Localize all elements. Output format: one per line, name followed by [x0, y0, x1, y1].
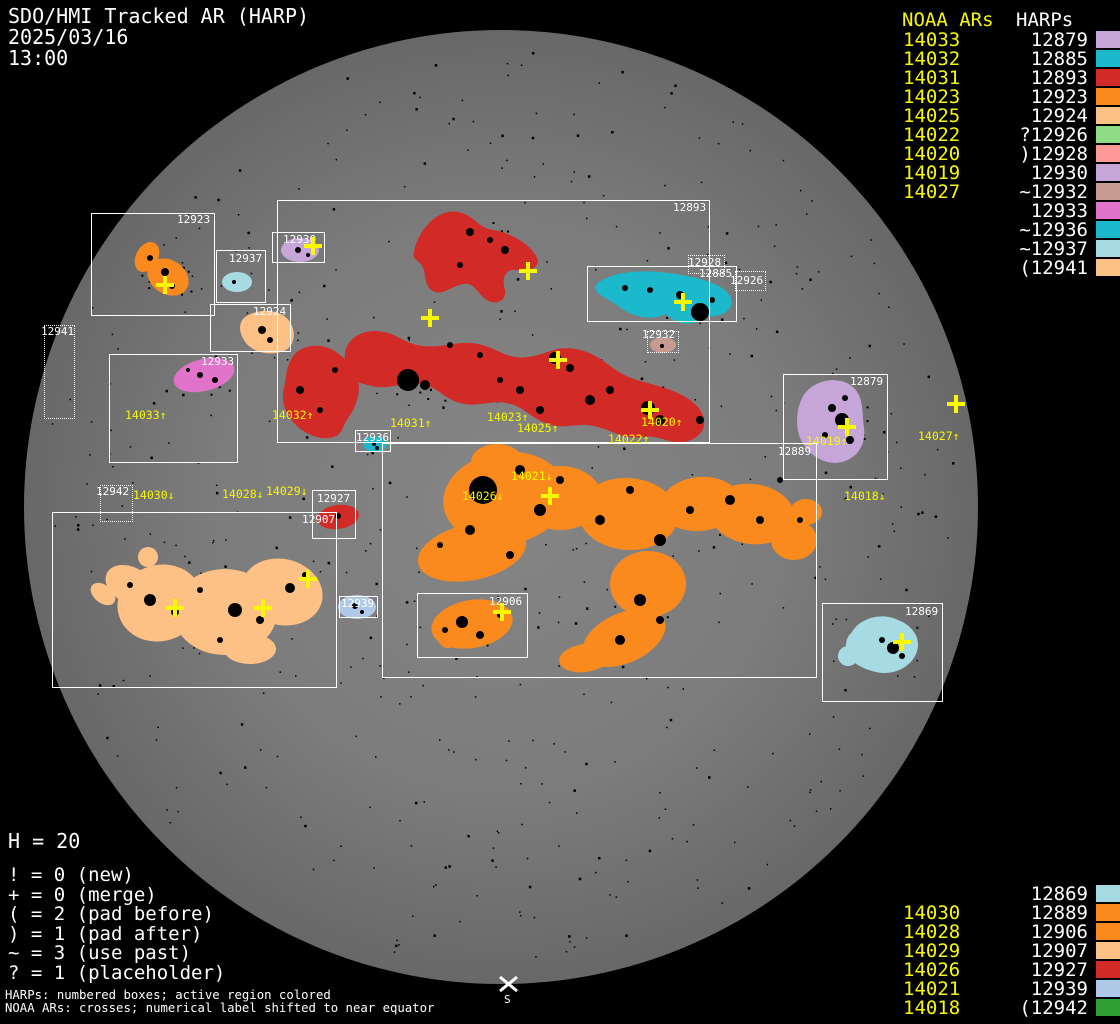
top-legend-swatch-~12936 [1096, 221, 1120, 238]
noaa-ar-label-14021: 14021↓ [511, 471, 553, 482]
noaa-ar-label-14027: 14027↑ [918, 431, 960, 442]
harp-box-label-12942: 12942 [96, 486, 129, 497]
harp-box-label-12869: 12869 [905, 606, 938, 617]
footer-notes: HARPs: numbered boxes; active region col… [5, 989, 434, 1015]
top-legend-swatch-(12941 [1096, 259, 1120, 276]
bottom-legend-swatch-12939 [1096, 980, 1120, 997]
header-block: SDO/HMI Tracked AR (HARP)2025/03/1613:00 [8, 6, 309, 69]
noaa-ar-label-14019: 14019↑ [806, 436, 848, 447]
noaa-ar-cross-icon [156, 276, 174, 294]
harp-tracker-screen: 1292312937129301292412933129411289312885… [0, 0, 1120, 1024]
noaa-ar-cross-icon [541, 487, 559, 505]
noaa-ar-cross-icon [549, 351, 567, 369]
harp-box-label-12893: 12893 [673, 202, 706, 213]
noaa-ar-cross-icon [299, 570, 317, 588]
noaa-ar-cross-icon [493, 603, 511, 621]
noaa-ar-label-14031: 14031↑ [390, 418, 432, 429]
noaa-ar-label-14030: 14030↓ [133, 490, 175, 501]
noaa-ar-cross-icon [893, 633, 911, 651]
noaa-ar-label-14022: 14022↑ [608, 434, 650, 445]
noaa-ar-cross-icon [421, 309, 439, 327]
top-legend-swatch-)12928 [1096, 145, 1120, 162]
harp-box-label-12923: 12923 [177, 214, 210, 225]
top-legend-harp-(12941: (12941 [995, 257, 1088, 279]
top-legend-swatch-12933 [1096, 202, 1120, 219]
noaa-ars-header: NOAA ARs [902, 9, 994, 31]
harp-box-12879 [783, 374, 888, 480]
harp-box-label-12907: 12907 [302, 514, 335, 525]
bottom-legend-harp-(12942: (12942 [995, 997, 1088, 1019]
noaa-ar-cross-icon [519, 262, 537, 280]
harp-box-label-12932: 12932 [642, 329, 675, 340]
harp-box-label-12936: 12936 [356, 432, 389, 443]
south-pole-label: S [504, 994, 511, 1005]
harp-box-label-12933: 12933 [201, 356, 234, 367]
flag-line: ! = 0 (new) [8, 866, 225, 886]
noaa-ar-cross-icon [674, 293, 692, 311]
top-legend-swatch-12923 [1096, 88, 1120, 105]
top-legend-swatch-12930 [1096, 164, 1120, 181]
noaa-ar-label-14032: 14032↑ [272, 410, 314, 421]
flag-legend: ! = 0 (new)+ = 0 (merge)( = 2 (pad befor… [8, 866, 225, 983]
top-legend-swatch-~12932 [1096, 183, 1120, 200]
harp-box-12923 [91, 213, 215, 316]
harp-box-12941 [44, 325, 75, 419]
noaa-ar-label-14028: 14028↓ [222, 489, 264, 500]
noaa-ar-label-14020: 14020↑ [641, 417, 683, 428]
bottom-legend-swatch-(12942 [1096, 999, 1120, 1016]
top-legend-swatch-12879 [1096, 31, 1120, 48]
top-legend-noaa-14027: 14027 [903, 181, 993, 203]
top-legend-swatch-12885 [1096, 50, 1120, 67]
flag-line: ? = 1 (placeholder) [8, 964, 225, 984]
noaa-ar-label-14025: 14025↑ [517, 423, 559, 434]
harp-box-label-12939: 12939 [341, 598, 374, 609]
noaa-ar-cross-icon [166, 599, 184, 617]
top-legend-swatch-~12937 [1096, 240, 1120, 257]
harp-box-label-12937: 12937 [229, 253, 262, 264]
harp-box-12907 [52, 512, 337, 688]
top-legend-swatch-12893 [1096, 69, 1120, 86]
time-label: 13:00 [8, 46, 68, 70]
top-legend-swatch-12924 [1096, 107, 1120, 124]
harp-box-label-12926: 12926 [730, 275, 763, 286]
flag-line: ~ = 3 (use past) [8, 944, 225, 964]
noaa-ar-label-14018: 14018↓ [844, 491, 886, 502]
harp-box-label-12941: 12941 [41, 326, 74, 337]
harp-box-label-12879: 12879 [850, 376, 883, 387]
bottom-legend-swatch-12869 [1096, 885, 1120, 902]
harp-box-label-12927: 12927 [317, 493, 350, 504]
flag-line: ( = 2 (pad before) [8, 905, 225, 925]
bottom-legend-swatch-12927 [1096, 961, 1120, 978]
harp-box-label-12928: 12928 [688, 257, 721, 268]
noaa-ar-cross-icon [947, 395, 965, 413]
noaa-ar-cross-icon [254, 599, 272, 617]
footer-line: NOAA ARs: crosses; numerical label shift… [5, 1002, 434, 1015]
top-legend-swatch-?12926 [1096, 126, 1120, 143]
footer-line: HARPs: numbered boxes; active region col… [5, 989, 434, 1002]
bottom-legend-swatch-12906 [1096, 923, 1120, 940]
noaa-ar-label-14026: 14026↓ [462, 491, 504, 502]
harp-count: H = 20 [8, 829, 80, 853]
noaa-ar-cross-icon [304, 237, 322, 255]
bottom-legend-swatch-12889 [1096, 904, 1120, 921]
noaa-ar-label-14029: 14029↓ [266, 486, 308, 497]
harps-header: HARPs [1016, 9, 1073, 31]
bottom-legend-noaa-14018: 14018 [903, 997, 993, 1019]
bottom-legend-swatch-12907 [1096, 942, 1120, 959]
noaa-ar-label-14033: 14033↑ [125, 410, 167, 421]
